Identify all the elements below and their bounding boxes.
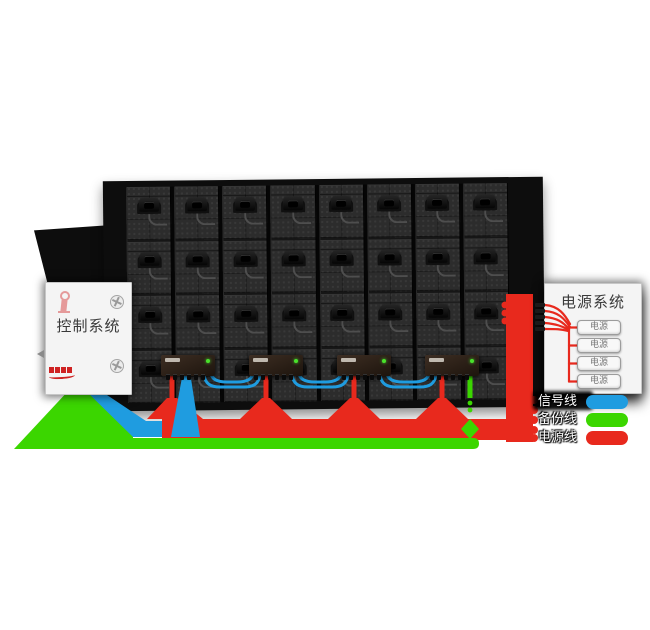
- module-cable: [341, 263, 360, 278]
- screw-icon: [110, 359, 124, 373]
- card-port: [444, 374, 448, 380]
- connector-pin: [535, 315, 545, 319]
- led-module: [368, 239, 412, 292]
- brand-i-icon: [57, 291, 71, 313]
- connector-pin: [535, 327, 545, 331]
- led-module: [465, 292, 509, 345]
- module-connector-icon: [332, 250, 352, 264]
- legend-label: 备份线: [538, 412, 577, 428]
- power-unit: 电源: [577, 338, 621, 353]
- module-connector-icon: [187, 251, 207, 265]
- module-cable: [389, 262, 408, 277]
- led-module: [416, 184, 460, 237]
- legend-swatch-red: [586, 431, 628, 445]
- brand-logo-swoosh: [49, 372, 75, 380]
- module-connector-icon: [140, 361, 160, 375]
- card-port: [458, 374, 462, 380]
- legend-swatch-green: [586, 413, 628, 427]
- module-cable: [438, 316, 457, 331]
- card-led-indicator: [382, 359, 386, 363]
- module-cable: [149, 319, 168, 334]
- led-module: [224, 240, 268, 293]
- card-ports: [342, 374, 381, 380]
- card-port: [289, 374, 293, 380]
- module-cable: [245, 318, 264, 333]
- module-connector-icon: [332, 304, 352, 318]
- module-connector-icon: [139, 252, 159, 266]
- module-cable: [486, 316, 505, 331]
- card-label: [341, 358, 356, 362]
- card-port: [342, 374, 346, 380]
- module-connector-icon: [380, 249, 400, 263]
- led-module: [464, 238, 508, 291]
- module-connector-icon: [331, 195, 351, 209]
- module-connector-icon: [475, 194, 495, 208]
- module-cable: [292, 209, 311, 224]
- led-module: [223, 186, 267, 239]
- module-connector-icon: [477, 303, 497, 317]
- card-port: [268, 374, 272, 380]
- module-cable: [293, 318, 312, 333]
- module-connector-icon: [428, 303, 448, 317]
- card-port: [282, 374, 286, 380]
- control-system-box: 控制系统: [45, 282, 132, 395]
- card-ports: [254, 374, 293, 380]
- card-label: [253, 358, 268, 362]
- card-port: [377, 374, 381, 380]
- led-module: [320, 239, 364, 292]
- led-module: [128, 296, 172, 349]
- module-cable: [244, 209, 263, 224]
- receiver-card: [425, 355, 479, 376]
- module-connector-icon: [139, 197, 159, 211]
- module-cable: [436, 207, 455, 222]
- module-connector-icon: [140, 306, 160, 320]
- card-port: [254, 374, 258, 380]
- module-cable: [293, 263, 312, 278]
- module-connector-icon: [236, 305, 256, 319]
- led-module: [367, 184, 411, 237]
- led-module: [176, 295, 220, 348]
- module-cable: [197, 319, 216, 334]
- card-led-indicator: [206, 359, 210, 363]
- module-cable: [485, 261, 504, 276]
- i-base: [58, 311, 70, 313]
- card-label: [165, 358, 180, 362]
- module-connector-icon: [187, 197, 207, 211]
- legend-label: 信号线: [538, 394, 577, 410]
- i-stem: [60, 300, 67, 311]
- receiver-card: [161, 355, 215, 376]
- module-connector-icon: [476, 248, 496, 262]
- receiver-card: [249, 355, 303, 376]
- backup-cable-green-band: [130, 438, 479, 449]
- module-connector-icon: [379, 195, 399, 209]
- control-box-title: 控制系统: [46, 315, 131, 336]
- card-label: [429, 358, 444, 362]
- card-port: [275, 374, 279, 380]
- led-module: [416, 238, 460, 291]
- card-port: [201, 374, 205, 380]
- card-port: [173, 374, 177, 380]
- module-connector-icon: [284, 305, 304, 319]
- module-connector-icon: [427, 194, 447, 208]
- led-module: [321, 294, 365, 347]
- power-system-box: 电源系统 电源电源电源电源: [544, 283, 642, 394]
- power-unit: 电源: [577, 374, 621, 389]
- led-module: [369, 293, 413, 346]
- card-ports: [166, 374, 205, 380]
- power-unit: 电源: [577, 320, 621, 335]
- led-module: [417, 293, 461, 346]
- connector-pin: [535, 309, 545, 313]
- module-connector-icon: [235, 251, 255, 265]
- card-port: [370, 374, 374, 380]
- module-connector-icon: [283, 250, 303, 264]
- module-connector-icon: [428, 249, 448, 263]
- led-module: [464, 183, 508, 236]
- module-cable: [390, 371, 409, 386]
- module-cable: [437, 262, 456, 277]
- module-cable: [389, 317, 408, 332]
- led-module: [319, 185, 363, 238]
- module-cable: [340, 208, 359, 223]
- card-port: [349, 374, 353, 380]
- backup-dot: [468, 408, 473, 413]
- receiver-card: [337, 355, 391, 376]
- connector-pin: [535, 321, 545, 325]
- connector-pin: [535, 303, 545, 307]
- power-unit: 电源: [577, 356, 621, 371]
- led-module: [272, 240, 316, 293]
- card-port: [451, 374, 455, 380]
- card-port: [356, 374, 360, 380]
- card-led-indicator: [470, 359, 474, 363]
- card-led-indicator: [294, 359, 298, 363]
- module-connector-icon: [188, 306, 208, 320]
- module-cable: [485, 207, 504, 222]
- backup-diamond: [461, 419, 479, 439]
- card-port: [180, 374, 184, 380]
- led-module: [127, 241, 171, 294]
- card-port: [465, 374, 469, 380]
- led-module: [175, 186, 219, 239]
- module-cable: [486, 370, 505, 385]
- module-connector-icon: [283, 196, 303, 210]
- led-module: [272, 294, 316, 347]
- card-port: [437, 374, 441, 380]
- card-port: [166, 374, 170, 380]
- led-module: [271, 185, 315, 238]
- module-cable: [388, 208, 407, 223]
- module-cable: [196, 264, 215, 279]
- card-ports: [430, 374, 469, 380]
- card-port: [430, 374, 434, 380]
- led-module: [224, 295, 268, 348]
- connector-arrow-icon: [37, 350, 44, 358]
- module-cable: [196, 210, 215, 225]
- legend-label: 电源线: [538, 430, 577, 446]
- brand-logo: [49, 367, 79, 381]
- module-cable: [148, 265, 167, 280]
- screw-icon: [110, 295, 124, 309]
- power-cable-red-band: [162, 419, 512, 440]
- module-cable: [148, 210, 167, 225]
- module-cable: [341, 317, 360, 332]
- legend-swatch-blue: [586, 395, 628, 409]
- module-connector-icon: [235, 196, 255, 210]
- signal-cable-blue-band: [138, 421, 197, 437]
- module-cable: [244, 264, 263, 279]
- led-module: [127, 187, 171, 240]
- card-port: [187, 374, 191, 380]
- card-port: [194, 374, 198, 380]
- card-port: [261, 374, 265, 380]
- led-module: [176, 241, 220, 294]
- module-connector-icon: [477, 357, 497, 371]
- wiring-diagram: 控制系统 电源系统 电源电源电源电源: [0, 0, 650, 630]
- card-port: [363, 374, 367, 380]
- module-connector-icon: [380, 304, 400, 318]
